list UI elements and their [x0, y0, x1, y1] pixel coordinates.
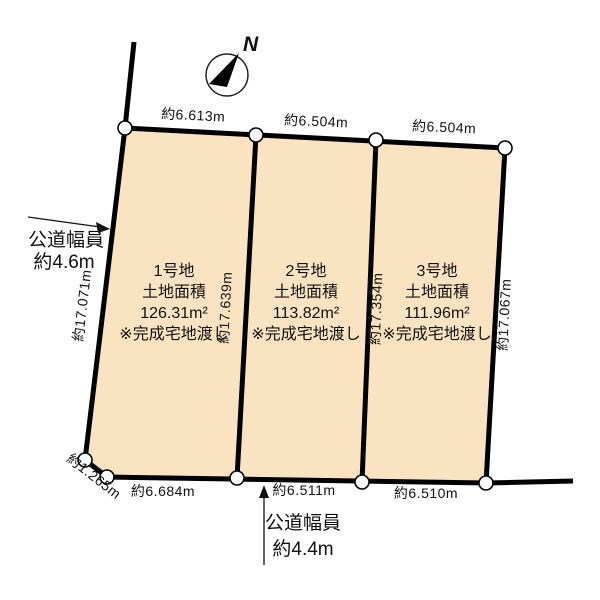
parcel-3-area: 111.96m² — [404, 305, 470, 322]
dim-top-1: 約6.613m — [161, 105, 226, 124]
parcel-1-note: ※完成宅地渡し — [119, 325, 228, 343]
parcel-1-area-label: 土地面積 — [142, 283, 206, 301]
parcel-2-area: 113.82m² — [273, 305, 340, 322]
parcel-2-area-label: 土地面積 — [274, 283, 338, 301]
dim-bottom-1: 約6.684m — [131, 483, 195, 499]
vertex-marker — [355, 475, 369, 489]
plot-svg: N 約6.613m 約6.504m 約6.504m 約6.684m 約6.511… — [0, 0, 600, 600]
parcel-3-name: 3号地 — [417, 262, 458, 280]
parcel-3-note: ※完成宅地渡し — [382, 325, 491, 343]
dim-top-3: 約6.504m — [412, 118, 477, 137]
dim-right-edge: 約17.067m — [494, 278, 514, 351]
bottom-road-width-value: 約4.4m — [272, 538, 333, 560]
parcel-1-name: 1号地 — [154, 262, 195, 280]
vertex-marker — [479, 476, 493, 490]
road-line-left-extension — [125, 42, 134, 128]
compass-north-label: N — [243, 33, 259, 56]
left-road-width-value: 約4.6m — [33, 251, 94, 273]
bottom-road-width-title: 公道幅員 — [265, 512, 341, 534]
vertex-marker — [369, 133, 383, 147]
parcel-1-area: 126.31m² — [140, 305, 208, 322]
road-line-bottom-extension — [486, 481, 573, 483]
parcel-3-area-label: 土地面積 — [405, 283, 469, 301]
vertex-marker — [249, 128, 263, 142]
compass: N — [206, 33, 259, 96]
vertex-marker — [118, 121, 132, 135]
vertex-marker — [230, 471, 244, 485]
parcel-2-note: ※完成宅地渡し — [251, 325, 360, 343]
dim-bottom-2: 約6.511m — [272, 482, 335, 498]
dim-bottom-3: 約6.510m — [394, 485, 458, 501]
vertex-marker — [498, 141, 512, 155]
dim-left-edge: 約17.071m — [70, 268, 95, 342]
land-plot-diagram: N 約6.613m 約6.504m 約6.504m 約6.684m 約6.511… — [0, 0, 600, 600]
parcel-2-name: 2号地 — [286, 262, 327, 280]
left-road-width-title: 公道幅員 — [28, 229, 104, 251]
dim-top-2: 約6.504m — [284, 112, 349, 131]
